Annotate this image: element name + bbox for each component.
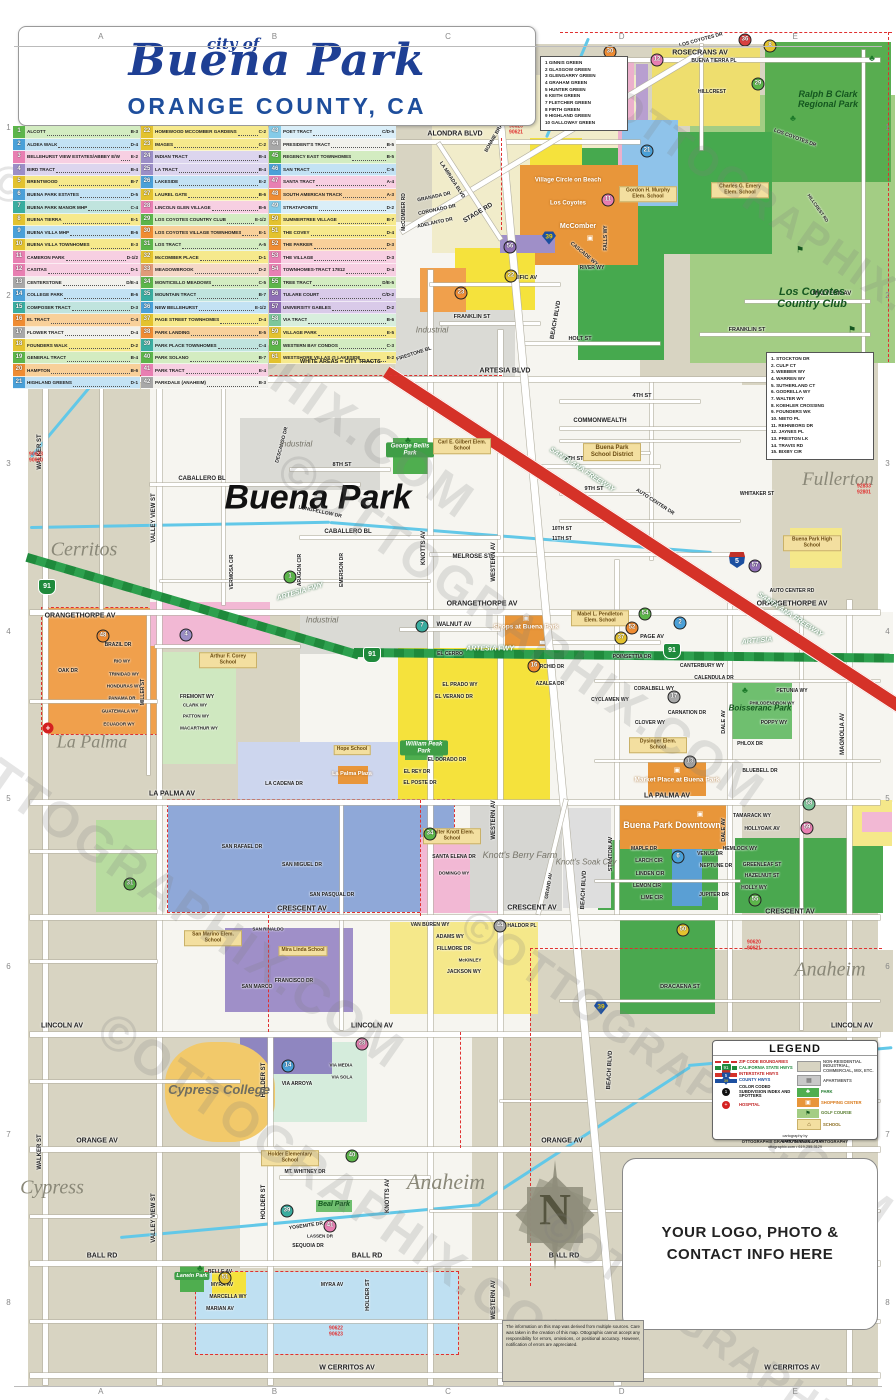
index-entry-name: SOUTH AMERICAN TRACK <box>281 192 342 197</box>
index-entry-number: 52 <box>269 239 281 251</box>
subdivision-spotter: 59 <box>801 822 814 835</box>
index-entry-gridref: E-2 <box>259 179 268 184</box>
index-entry-name: HAMPTON <box>25 368 50 373</box>
index-entry: 19GENERAL TRACTB-4 <box>13 352 140 365</box>
tree-icon: ♣ <box>742 685 748 695</box>
street-label: DALE AV <box>721 818 727 842</box>
legend-item-label: COLOR CODED SUBDIVISION INDEX AND SPOTTE… <box>739 1085 793 1099</box>
index-entry-number: 55 <box>269 277 281 289</box>
index-entry-gridref: B-3 <box>131 129 140 134</box>
legend-park-swatch-icon: ♣ <box>797 1088 819 1097</box>
index-entry-gridref: B-7 <box>131 179 140 184</box>
place-label: Boisseranc Park <box>729 705 792 714</box>
index-entry-name: SUMMERTREE VILLAGE <box>281 217 337 222</box>
street-label: HAZELNUT ST <box>745 873 780 879</box>
road-vertical <box>650 380 653 560</box>
index-entry-gridref: C/D-2 <box>382 292 396 297</box>
index-entry-gridref: D-4 <box>131 142 140 147</box>
street-label: LINDEN CIR <box>636 871 665 877</box>
street-list-item: 13. PRESTON LK <box>771 436 869 443</box>
index-entry-name: HOMEWOOD MCCOMBER GARDENS <box>153 129 237 134</box>
street-label: EL CERRO <box>437 651 463 657</box>
index-entry-name: BUENA PARK ESTATES <box>25 192 79 197</box>
index-entry: 20HAMPTONB-6 <box>13 364 140 377</box>
index-entry: 48SOUTH AMERICAN TRACKA-3 <box>269 189 396 202</box>
street-label: HOLLY WY <box>741 885 767 891</box>
street-list-item: 10. NIETO PL <box>771 416 869 423</box>
street-label: AUTO CENTER RD <box>770 588 815 594</box>
place-label: Gordon H. Murphy Elem. School <box>619 186 677 202</box>
street-label: EL PRADO WY <box>442 682 477 688</box>
street-label: McCOMBER RD <box>401 193 407 231</box>
road-horizontal <box>30 700 157 703</box>
index-entry-number: 51 <box>269 226 281 238</box>
index-entry-name: REGENCY EAST TOWNHOMES <box>281 154 351 159</box>
street-label: WHITAKER ST <box>740 491 774 497</box>
street-label: ARTESIA BLVD <box>480 368 531 375</box>
index-entry-name: THE VILLAGE <box>281 255 313 260</box>
index-entry-number: 26 <box>141 176 153 188</box>
index-entry-number: 25 <box>141 164 153 176</box>
index-entry-gridref: E-5 <box>387 330 396 335</box>
street-list-item: 7. WALTER WY <box>771 396 869 403</box>
road-horizontal <box>440 322 540 325</box>
hospital-icon: + <box>43 723 54 734</box>
index-entry: 45REGENCY EAST TOWNHOMESB-5 <box>269 151 396 164</box>
index-entry-number: 28 <box>141 201 153 213</box>
index-entry-number: 42 <box>141 377 153 389</box>
street-label: FREMONT WY <box>180 694 214 700</box>
city-name-label: Anaheim <box>407 1169 485 1195</box>
index-entry-name: NEW BELLEHURST <box>153 305 198 310</box>
legend-item: ▣SHOPPING CENTER <box>797 1098 875 1107</box>
index-entry-number: 32 <box>141 251 153 263</box>
grid-col-letter: A <box>14 32 188 46</box>
index-entry: 26LAKESIDEE-2 <box>141 176 268 189</box>
index-entry-name: GENERAL TRACT <box>25 355 66 360</box>
place-label: La Palma Plaza <box>332 771 372 777</box>
legend-item: 39COUNTY HWYS <box>715 1078 793 1083</box>
index-entry-gridref: B-4 <box>259 154 268 159</box>
greens-list-item: 7 FLETCHER GREEN <box>545 100 623 107</box>
map-area <box>160 652 236 764</box>
city-name-label: Anaheim <box>794 959 865 982</box>
street-label: PAGE AV <box>640 634 664 640</box>
index-entry-gridref: B-6 <box>387 317 396 322</box>
index-entry-gridref: D-4 <box>387 230 396 235</box>
index-entry-name: LA TRACT <box>153 167 178 172</box>
index-column-1: 1ALCOTTB-32ALDEA WALKD-43BELLEHURST VIEW… <box>13 126 140 389</box>
street-label: SAN RAFAEL DR <box>222 844 262 850</box>
road-horizontal <box>595 880 740 882</box>
street-label: ECUADOR WY <box>103 722 134 727</box>
street-label: VAN BUREN WY <box>411 922 450 928</box>
index-column-2: 22HOMEWOOD MCCOMBER GARDENSC-223IMAGESC-… <box>141 126 268 389</box>
grid-col-letter: E <box>708 32 882 46</box>
street-label: PHLOX DR <box>737 741 763 747</box>
grid-row-number: 4 <box>2 547 15 715</box>
index-entry: 22HOMEWOOD MCCOMBER GARDENSC-2 <box>141 126 268 139</box>
street-label: PETUNIA WY <box>776 688 807 694</box>
zip-boundary <box>420 800 421 916</box>
index-entry-gridref: E-5 <box>259 330 268 335</box>
grid-row-number: 5 <box>881 715 894 883</box>
subdivision-spotter: 11 <box>602 194 615 207</box>
index-entry-gridref: B-5 <box>387 142 396 147</box>
street-label: MAGNOLIA AV <box>840 713 846 755</box>
subdivision-spotter: 34 <box>424 828 437 841</box>
index-entry-gridref: D-2 <box>387 205 396 210</box>
street-label: HOLDER ST <box>365 1279 371 1311</box>
index-entry: 13CENTERSTONED/E-4 <box>13 277 140 290</box>
legend-right-column: NON-RESIDENTIAL INDUSTRIAL, COMMERCIAL, … <box>795 1057 877 1133</box>
index-entry: 1ALCOTTB-3 <box>13 126 140 139</box>
index-entry-number: 56 <box>269 289 281 301</box>
index-entry-gridref: C-5 <box>259 280 268 285</box>
street-label: HILLCREST <box>698 89 726 95</box>
index-entry-name: PARK LANDING <box>153 330 190 335</box>
index-entry: 25LA TRACTB-4 <box>141 164 268 177</box>
index-entry: 49STRATAPOINTED-2 <box>269 201 396 214</box>
street-label: GREENLEAF ST <box>743 862 782 868</box>
title-subtitle: ORANGE COUNTY, CA <box>19 93 535 120</box>
zip-boundary <box>460 1032 461 1148</box>
street-label: WESTERN AV <box>491 800 497 839</box>
street-label: BUENA TIERRA PL <box>691 58 736 64</box>
street-label: CALENDULA DR <box>694 675 734 681</box>
index-entry: 21HIGHLAND GREENSD-1 <box>13 377 140 390</box>
zip-boundary <box>530 948 882 949</box>
index-entry: 11CAMERON PARKD-1/2 <box>13 251 140 264</box>
index-entry: 7BUENA PARK MANOR MHPC-4 <box>13 201 140 214</box>
index-entry-gridref: A-4 <box>387 179 396 184</box>
index-entry-number: 22 <box>141 126 153 138</box>
street-label: W CERRITOS AV <box>319 1365 374 1372</box>
grid-col-letter: B <box>188 1387 362 1400</box>
street-label: CABALLERO BL <box>178 476 225 482</box>
road-vertical <box>147 612 150 775</box>
street-label: VERMOSA CIR <box>229 554 235 589</box>
index-entry-name: BUENA VILLA MHP <box>25 230 69 235</box>
road-vertical <box>728 600 732 1032</box>
street-label: CRESCENT AV <box>765 909 814 916</box>
index-entry-gridref: D-2 <box>259 267 268 272</box>
index-entry-number: 45 <box>269 151 281 163</box>
index-entry: 52THE PARKERD-3 <box>269 239 396 252</box>
index-entry-name: VIA TRACT <box>281 317 307 322</box>
index-entry-name: PAGE STREET TOWNHOMES <box>153 317 219 322</box>
street-label: CANTERBURY WY <box>680 663 724 669</box>
index-entry-gridref: B-4 <box>131 167 140 172</box>
index-entry-gridref: B-7 <box>387 217 396 222</box>
index-entry-name: SANTA TRACT <box>281 179 315 184</box>
subdivision-spotter: 29 <box>752 78 765 91</box>
index-entry-name: HIGHLAND GREENS <box>25 380 72 385</box>
index-entry-name: POET TRACT <box>281 129 312 134</box>
index-entry: 38PARK LANDINGE-5 <box>141 327 268 340</box>
index-entry-name: LOS COYOTES COUNTRY CLUB <box>153 217 226 222</box>
grid-row-number: 5 <box>2 715 15 883</box>
map-page: ROSECRANS AVALONDRA BLVDSTAGE RDARTESIA … <box>0 0 896 1400</box>
zip-code-label: 9062290623 <box>329 1327 343 1338</box>
street-label: CLARK WY <box>183 703 207 708</box>
index-entry-gridref: D/E-4 <box>126 280 140 285</box>
zip-code-label: 9062090621 <box>509 125 523 136</box>
index-entry-gridref: C-3 <box>387 343 396 348</box>
index-entry-name: THE COVEY <box>281 230 310 235</box>
legend-item: 1COLOR CODED SUBDIVISION INDEX AND SPOTT… <box>715 1085 793 1099</box>
index-entry: 60WESTERN BAY CONDOSC-3 <box>269 339 396 352</box>
street-label: HONDURAS WY <box>107 684 142 689</box>
index-entry-name: COMPOSER TRACT <box>25 305 71 310</box>
street-list-item: 5. SUTHERLAND CT <box>771 383 869 390</box>
street-label: EL REY DR <box>404 769 431 775</box>
index-entry-gridref: D-1 <box>131 267 140 272</box>
legend-item: +HOSPITAL <box>715 1101 793 1110</box>
street-list-item: 2. CULP CT <box>771 363 869 370</box>
grid-col-letter: C <box>361 32 535 46</box>
street-list-item: 8. KOEHLER CROSSING <box>771 403 869 410</box>
index-entry: 58VIA TRACTB-6 <box>269 314 396 327</box>
greens-list-item: 10 GALLOWAY GREEN <box>545 120 623 127</box>
city-name-label: Cypress <box>20 1177 84 1200</box>
index-entry-name: INDIAN TRACT <box>153 154 188 159</box>
street-label: COMMONWEALTH <box>573 418 626 424</box>
city-name-label: Cerritos <box>51 539 118 562</box>
subdivision-index: 1ALCOTTB-32ALDEA WALKD-43BELLEHURST VIEW… <box>13 126 397 389</box>
street-label: PATTON WY <box>183 714 209 719</box>
index-entry-name: CAMERON PARK <box>25 255 65 260</box>
street-label: FRANKLIN ST <box>729 327 766 333</box>
index-entry-name: EL TRACT <box>25 317 50 322</box>
index-entry-name: CENTERSTONE <box>25 280 62 285</box>
index-entry-name: SAN TRACT <box>281 167 310 172</box>
index-entry: 27LAUREL GATEB-6 <box>141 189 268 202</box>
street-label: LEMON CIR <box>633 883 661 889</box>
index-entry-gridref: D-4 <box>387 267 396 272</box>
index-entry-name: TREE TRACT <box>281 280 312 285</box>
index-entry-name: LOS TRACT <box>153 242 181 247</box>
index-entry: 30LOS COYOTES VILLAGE TOWNHOMESE-1 <box>141 226 268 239</box>
shopping-cart-icon: ▣ <box>697 810 704 818</box>
index-entry-number: 59 <box>269 327 281 339</box>
index-entry-number: 61 <box>269 352 281 364</box>
street-label: ROSECRANS AV <box>672 50 728 57</box>
street-label: ORANGE AV <box>76 1138 118 1145</box>
street-label: OAK DR <box>58 668 78 674</box>
street-label: 11TH ST <box>552 536 572 542</box>
index-entry-number: 29 <box>141 214 153 226</box>
grid-row-number: 2 <box>881 212 894 380</box>
index-entry-name: LOS COYOTES VILLAGE TOWNHOMES <box>153 230 241 235</box>
map-area <box>238 742 398 800</box>
legend-left-column: ZIP CODE BOUNDARIES91CALIFORNIA STATE HW… <box>713 1057 795 1133</box>
legend-title: LEGEND <box>713 1043 877 1056</box>
greens-list-item: 1 GINNIS GREEN <box>545 60 623 67</box>
index-entry-gridref: A-5 <box>259 242 268 247</box>
index-entry: 14COLLEGE PARKB-6 <box>13 289 140 302</box>
index-entry-number: 33 <box>141 264 153 276</box>
zip-code-label: 9062090621 <box>747 941 761 952</box>
legend-item-label: SHOPPING CENTER <box>821 1101 862 1106</box>
legend-item: ♣PARK <box>797 1088 875 1097</box>
zip-code-label: 9283392801 <box>857 485 871 496</box>
index-entry-gridref: D-3 <box>387 255 396 260</box>
street-label: HOLDER ST <box>261 1185 267 1220</box>
index-entry-name: LAKESIDE <box>153 179 178 184</box>
street-label: VIA MEDIA <box>329 1063 352 1068</box>
index-entry: 56TULARE COURTC/D-2 <box>269 289 396 302</box>
index-entry: 31LOS TRACTA-5 <box>141 239 268 252</box>
grid-row-number: 8 <box>881 1218 894 1386</box>
index-entry-name: MOUNTAIN TRACT <box>153 292 196 297</box>
street-list-item: 3. WEBBER WY <box>771 369 869 376</box>
street-label: HOLT ST <box>568 336 591 342</box>
street-label: 10TH ST <box>552 526 572 532</box>
legend-int-swatch-icon: 5 <box>715 1073 737 1077</box>
index-entry-number: 39 <box>141 339 153 351</box>
greens-list-item: 6 KEITH GREEN <box>545 93 623 100</box>
greens-list-box: 1 GINNIS GREEN2 GLASGOW GREEN3 GLENGARRY… <box>540 56 628 131</box>
legend-item-label: COUNTY HWYS <box>739 1078 770 1083</box>
street-label: LINCOLN AV <box>41 1023 83 1030</box>
subdivision-spotter: 54 <box>639 608 652 621</box>
index-entry-number: 38 <box>141 327 153 339</box>
index-entry: 3BELLEHURST VIEW ESTATES/ABBEY E/WE-2 <box>13 151 140 164</box>
street-label: HOLLYOAK AV <box>744 826 779 832</box>
legend-credit: cartography by OTTOGRAPHIX GRAPHIC DESIG… <box>713 1134 877 1150</box>
index-entry: 44PRESIDENT'S TRACTB-5 <box>269 139 396 152</box>
shopping-cart-icon: ▣ <box>587 234 594 242</box>
index-entry-gridref: B-6 <box>131 292 140 297</box>
subdivision-spotter: 22 <box>505 270 518 283</box>
legend-state-swatch-icon: 91 <box>715 1066 737 1070</box>
street-label: MACARTHUR WY <box>180 726 218 731</box>
index-entry-gridref: D-5 <box>131 192 140 197</box>
road-horizontal <box>540 465 660 468</box>
place-label: William Peak Park <box>400 740 448 755</box>
index-entry: 36NEW BELLEHURSTE-1/2 <box>141 302 268 315</box>
grid-row-number: 3 <box>2 380 15 548</box>
index-entry-number: 46 <box>269 164 281 176</box>
grid-row-number: 7 <box>2 1051 15 1219</box>
street-label: VENUS DR <box>697 851 723 857</box>
legend-golf-swatch-icon: ⚑ <box>797 1109 819 1118</box>
subdivision-spotter: 55 <box>749 894 762 907</box>
grid-ruler-left: 12345678 <box>2 44 15 1386</box>
place-label: Buena Park School District <box>583 443 641 461</box>
index-entry-name: BELLEHURST VIEW ESTATES/ABBEY E/W <box>25 154 120 159</box>
street-label: CRESCENT AV <box>277 906 326 913</box>
street-label: EL VERANO DR <box>435 694 473 700</box>
index-note: WHITE AREAS = CITY TRACTS <box>300 359 381 365</box>
street-label: TRINIDAD WY <box>109 672 139 677</box>
street-label: GUATEMALA WY <box>102 709 139 714</box>
index-entry-name: BUENA PARK MANOR MHP <box>25 205 87 210</box>
street-label: DALE AV <box>721 710 727 734</box>
map-area <box>765 42 891 182</box>
legend-item-label: ZIP CODE BOUNDARIES <box>739 1060 788 1065</box>
index-entry-name: PARK PLACE TOWNHOMES <box>153 343 217 348</box>
index-entry-number: 60 <box>269 339 281 351</box>
index-entry-gridref: B-3 <box>259 380 268 385</box>
street-label: SEQUOIA DR <box>292 1243 323 1249</box>
street-label: VALLEY VIEW ST <box>151 493 157 542</box>
index-entry: 29LOS COYOTES COUNTRY CLUBE-1/2 <box>141 214 268 227</box>
index-entry-gridref: E-1/2 <box>255 305 268 310</box>
road-horizontal <box>700 333 870 336</box>
index-entry: 9BUENA VILLA MHPB-6 <box>13 226 140 239</box>
street-list-box: 1. STOCKTON DR2. CULP CT3. WEBBER WY4. W… <box>766 352 874 460</box>
street-label: POINSETTIA DR <box>613 654 651 660</box>
subdivision-spotter: 52 <box>626 622 639 635</box>
index-entry-name: BRENTWOOD <box>25 179 58 184</box>
grid-row-number: 3 <box>881 380 894 548</box>
index-entry-name: STRATAPOINTE <box>281 205 318 210</box>
index-entry-gridref: E-2 <box>131 154 140 159</box>
index-entry: 59VILLAGE PARKE-5 <box>269 327 396 340</box>
grid-row-number: 6 <box>881 883 894 1051</box>
legend-nonres-swatch-icon <box>797 1061 821 1072</box>
index-entry-number: 44 <box>269 139 281 151</box>
road-horizontal <box>30 1215 157 1218</box>
index-entry-number: 23 <box>141 139 153 151</box>
place-label: Ralph B Clark Regional Park <box>794 90 862 110</box>
index-entry-name: PARKDALE (ANAHEIM) <box>153 380 206 385</box>
street-label: EL POSTE DR <box>403 780 436 786</box>
grid-col-letter: E <box>708 1387 882 1400</box>
place-label: Knott's Berry Farm <box>483 850 558 860</box>
index-entry-name: ALDEA WALK <box>25 142 57 147</box>
subdivision-spotter: 2 <box>674 617 687 630</box>
street-label: MAPLE DR <box>631 846 657 852</box>
legend-item-label: CALIFORNIA STATE HWYS <box>739 1066 793 1071</box>
street-label: LARCH CIR <box>635 858 663 864</box>
index-entry-number: 41 <box>141 364 153 376</box>
index-entry-number: 40 <box>141 352 153 364</box>
index-entry: 47SANTA TRACTA-4 <box>269 176 396 189</box>
greens-list-item: 8 FIRTH GREEN <box>545 107 623 114</box>
street-label: BRAZIL DR <box>105 642 132 648</box>
index-entry-gridref: B-6 <box>259 192 268 197</box>
index-entry-gridref: B-7 <box>259 355 268 360</box>
index-entry: 4BIRD TRACTB-4 <box>13 164 140 177</box>
golf-flag-icon: ⚑ <box>848 325 856 336</box>
street-label: LA PALMA AV <box>149 791 195 798</box>
legend-item: ▦APARTMENTS <box>797 1075 875 1086</box>
subdivision-spotter: 14 <box>282 1060 295 1073</box>
road-horizontal <box>430 283 560 286</box>
index-entry-number: 43 <box>269 126 281 138</box>
index-entry: 40PARK SOLANOB-7 <box>141 352 268 365</box>
index-entry-gridref: D-1/2 <box>127 255 140 260</box>
index-entry-name: FLOWER TRACT <box>25 330 64 335</box>
road-horizontal <box>560 400 700 403</box>
place-label: Industrial <box>306 616 338 625</box>
grid-ruler-right: 12345678 <box>881 44 894 1386</box>
index-entry-name: McCOMBER PLACE <box>153 255 199 260</box>
index-entry: 46SAN TRACTC-5 <box>269 164 396 177</box>
place-label: Los Coyotes Country Club <box>770 286 854 310</box>
legend-item-label: HOSPITAL <box>739 1103 760 1108</box>
place-label: Industrial <box>416 326 448 335</box>
index-entry: 42PARKDALE (ANAHEIM)B-3 <box>141 377 268 390</box>
legend-cty-swatch-icon: 39 <box>715 1079 737 1083</box>
street-label: VIA SOLA <box>331 1075 352 1080</box>
subdivision-spotter: 12 <box>651 54 664 67</box>
subdivision-spotter: 58 <box>803 798 816 811</box>
index-entry-number: 53 <box>269 251 281 263</box>
